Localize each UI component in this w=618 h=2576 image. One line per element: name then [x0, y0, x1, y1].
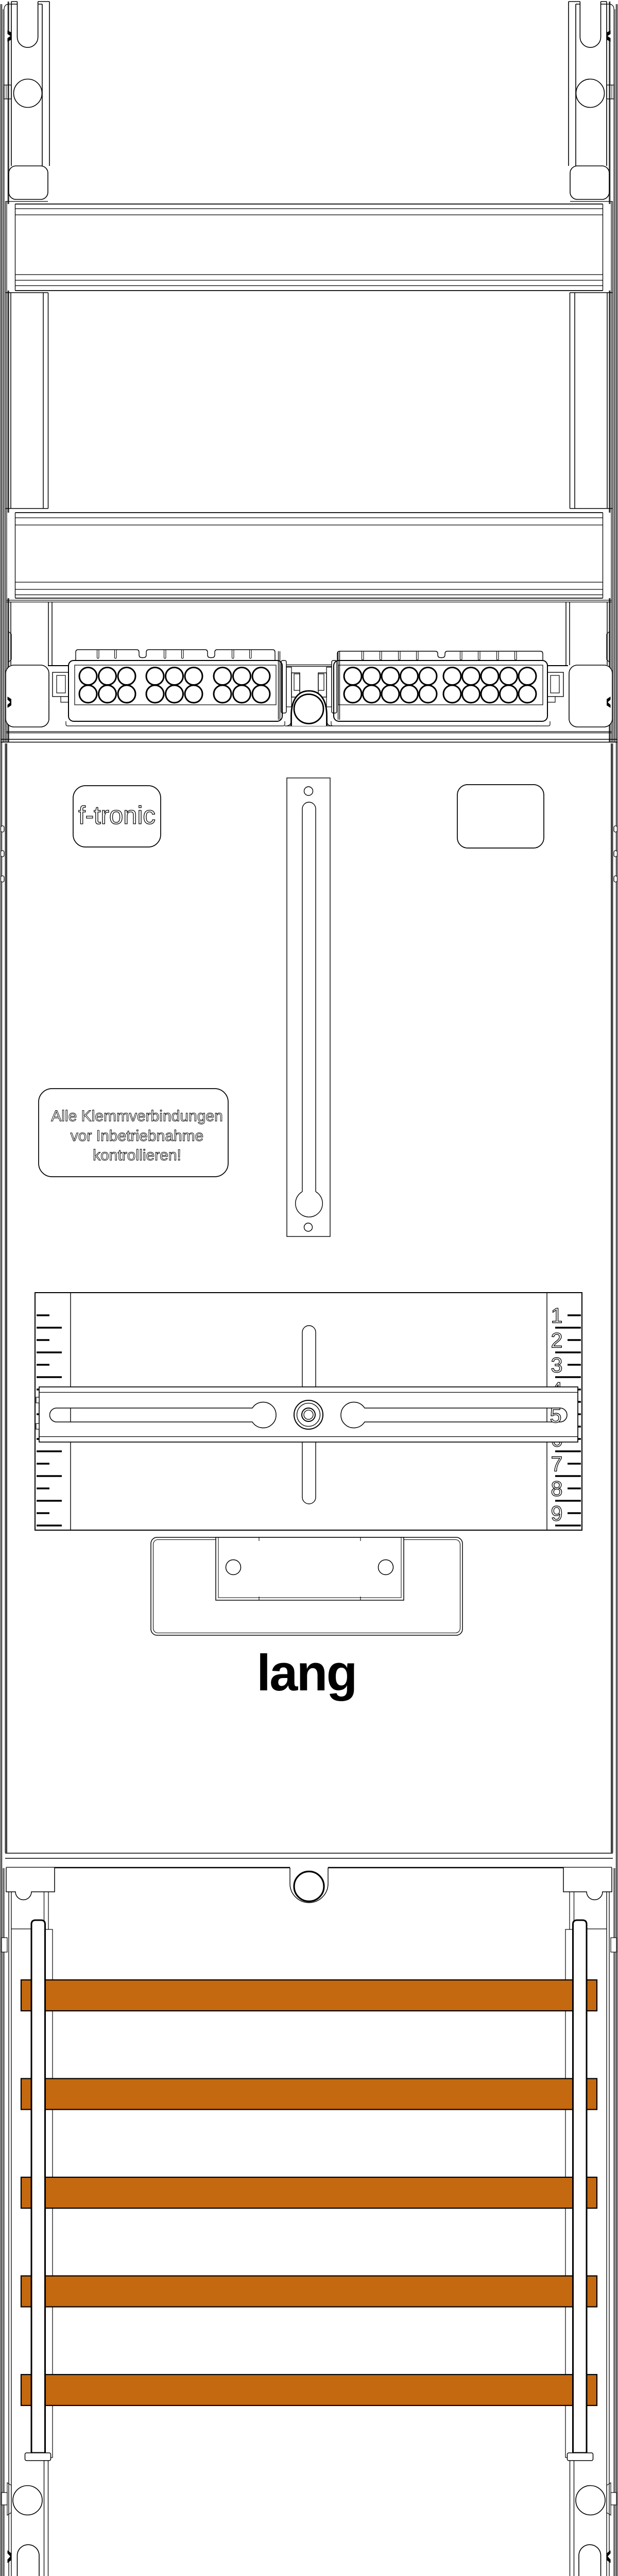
svg-text:f-tronic: f-tronic	[78, 802, 156, 829]
svg-text:3: 3	[551, 1353, 563, 1377]
svg-text:9: 9	[551, 1502, 563, 1526]
svg-text:5: 5	[550, 1403, 562, 1427]
svg-text:7: 7	[551, 1452, 563, 1476]
svg-text:lang: lang	[256, 1644, 356, 1701]
svg-text:Alle Klemmverbindungen: Alle Klemmverbindungen	[51, 1108, 223, 1125]
svg-text:vor Inbetriebnahme: vor Inbetriebnahme	[71, 1128, 204, 1145]
svg-text:8: 8	[551, 1477, 563, 1501]
svg-text:2: 2	[551, 1329, 563, 1352]
svg-text:1: 1	[551, 1304, 563, 1328]
svg-text:kontrollieren!: kontrollieren!	[93, 1147, 181, 1164]
